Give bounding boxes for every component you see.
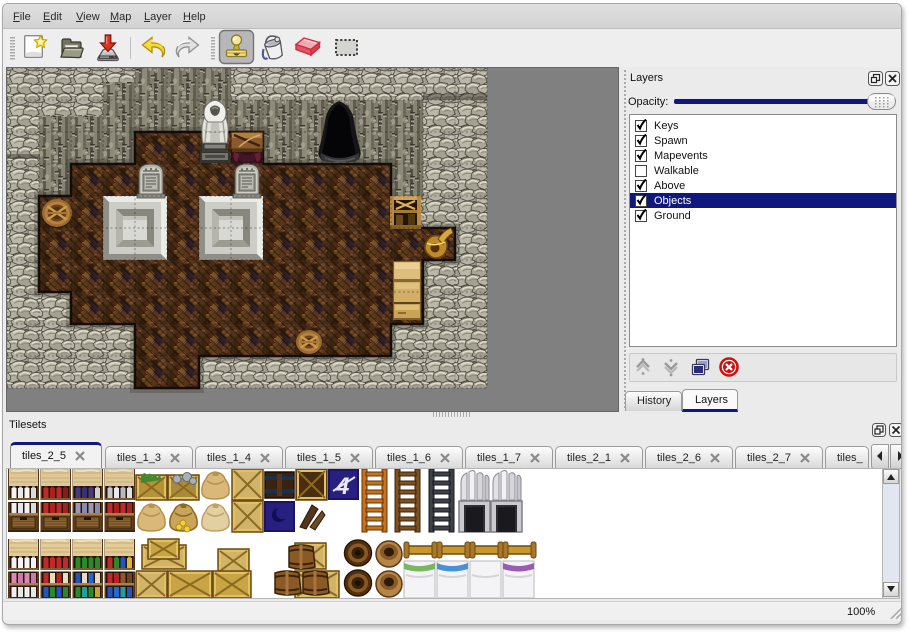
svg-text:4: 4 [335,473,349,500]
